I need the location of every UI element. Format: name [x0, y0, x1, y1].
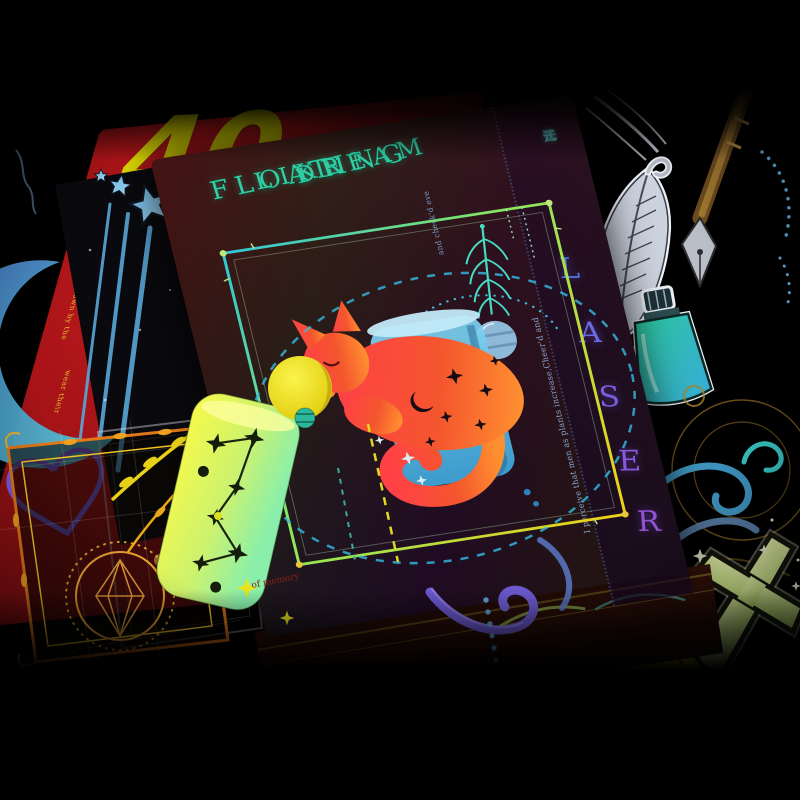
dip-pen — [682, 62, 756, 286]
dotted-arcs-icon — [762, 152, 789, 310]
laser-letter: R — [636, 505, 662, 538]
silver-blades-icon — [586, 88, 666, 160]
blue-dot — [532, 501, 539, 507]
leaf-ornament-icon — [457, 222, 521, 321]
title-line-3: DREAM — [291, 130, 434, 190]
product-photo-stage: 40 in their yo down by the wear their — [0, 0, 800, 800]
blue-dot — [523, 488, 531, 495]
